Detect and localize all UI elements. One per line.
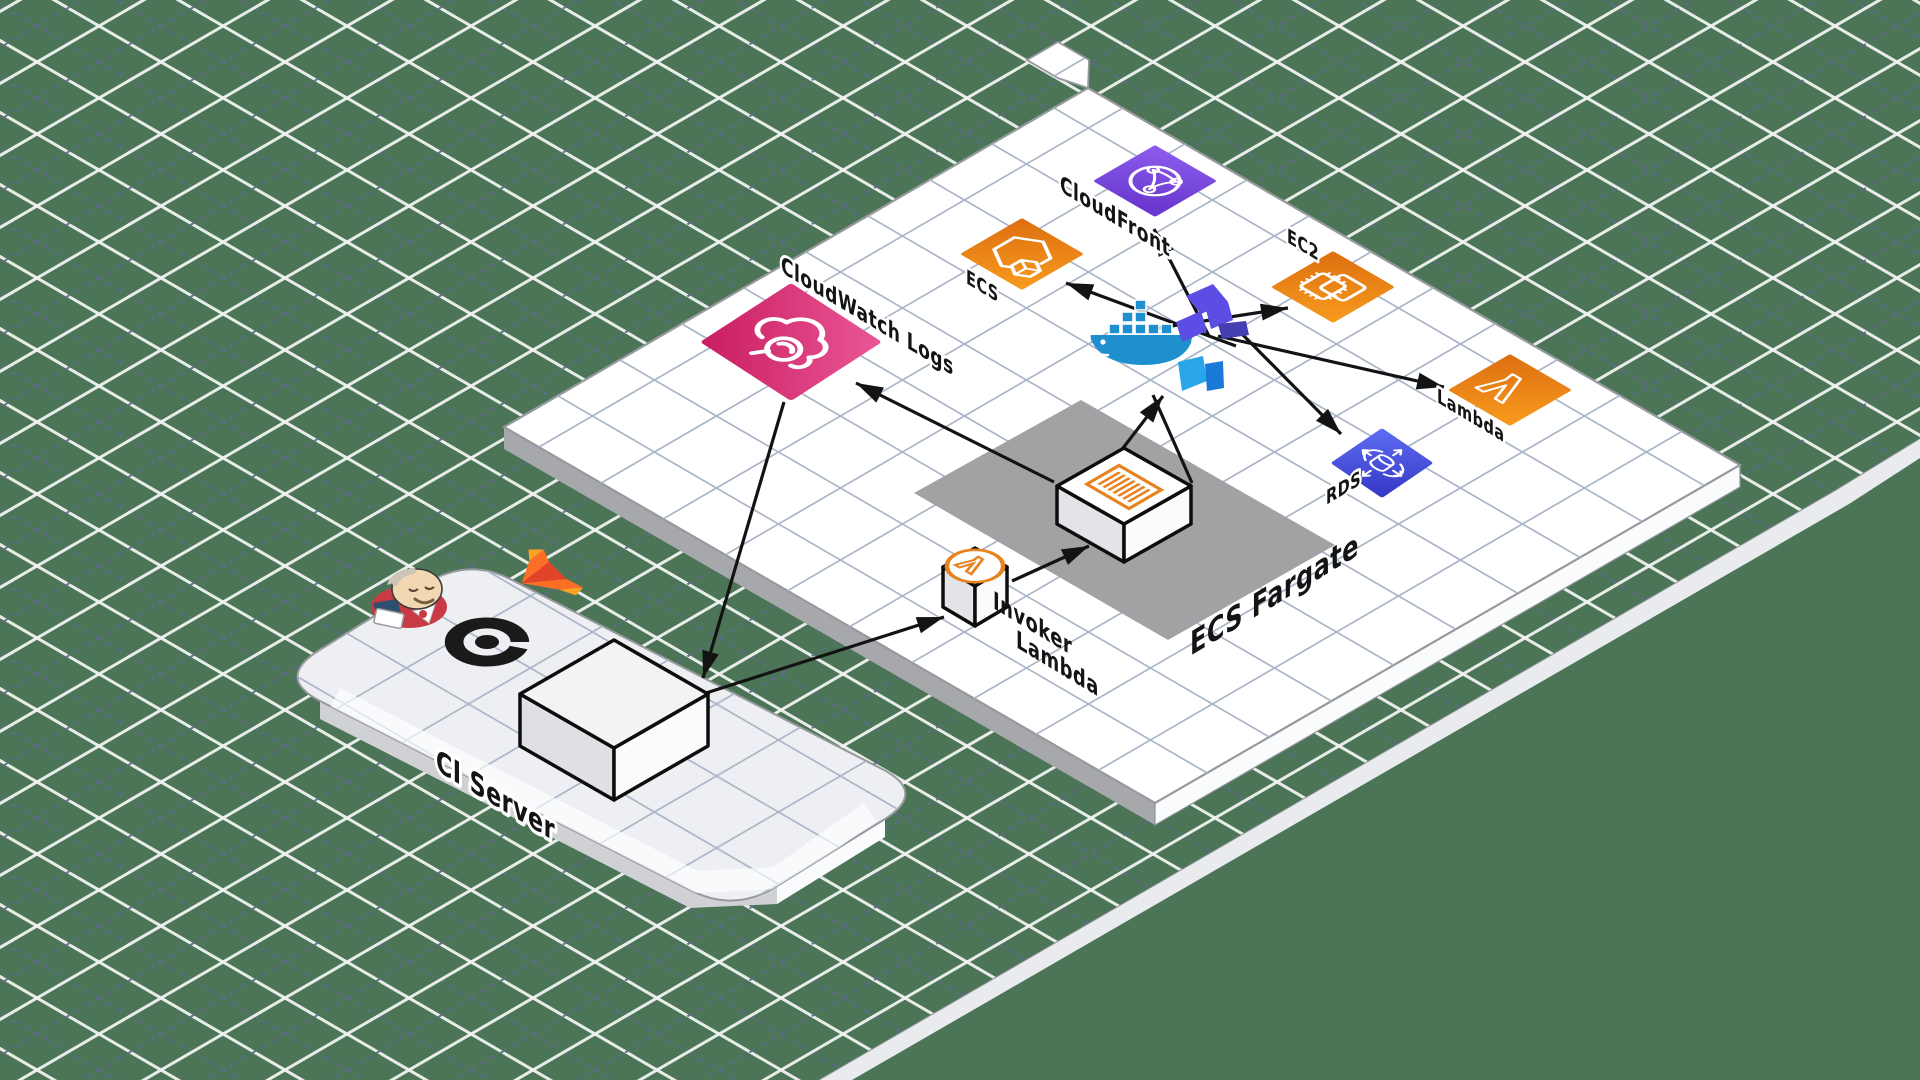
isometric-architecture-diagram: CI Server CloudWatch Logs ECS CloudFront… [0, 0, 1920, 1080]
diagram-canvas: CI Server CloudWatch Logs ECS CloudFront… [0, 0, 1920, 1080]
